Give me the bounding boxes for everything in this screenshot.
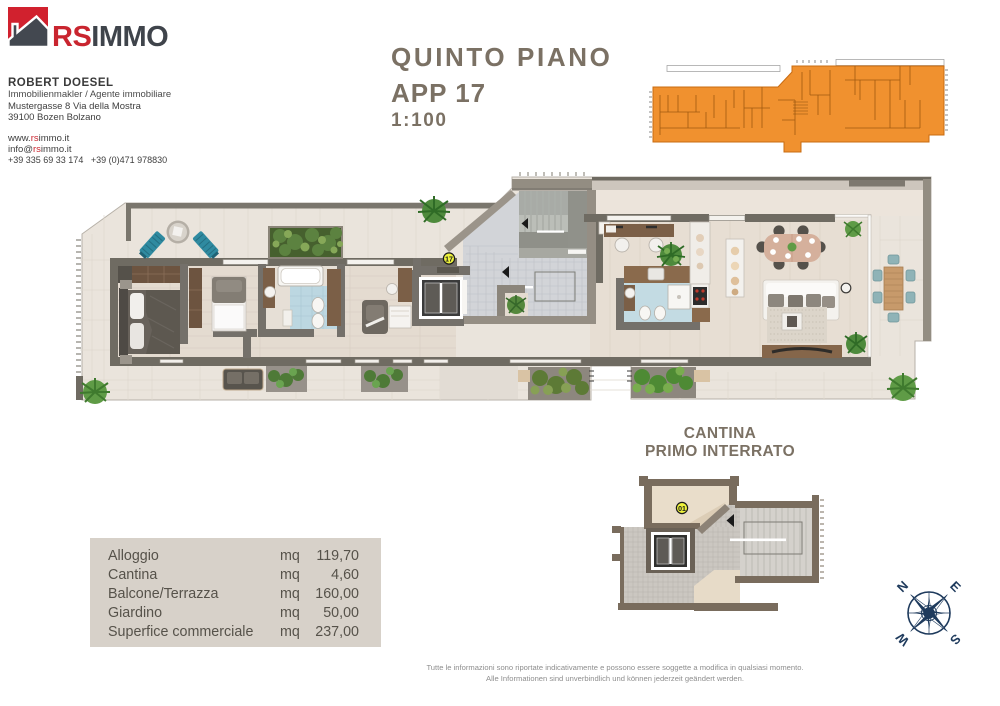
svg-text:17: 17 — [445, 256, 453, 263]
svg-text:E: E — [947, 578, 964, 595]
svg-text:01: 01 — [678, 506, 686, 513]
svg-text:N: N — [894, 578, 911, 595]
svg-text:S: S — [947, 631, 964, 648]
svg-text:W: W — [892, 629, 912, 649]
